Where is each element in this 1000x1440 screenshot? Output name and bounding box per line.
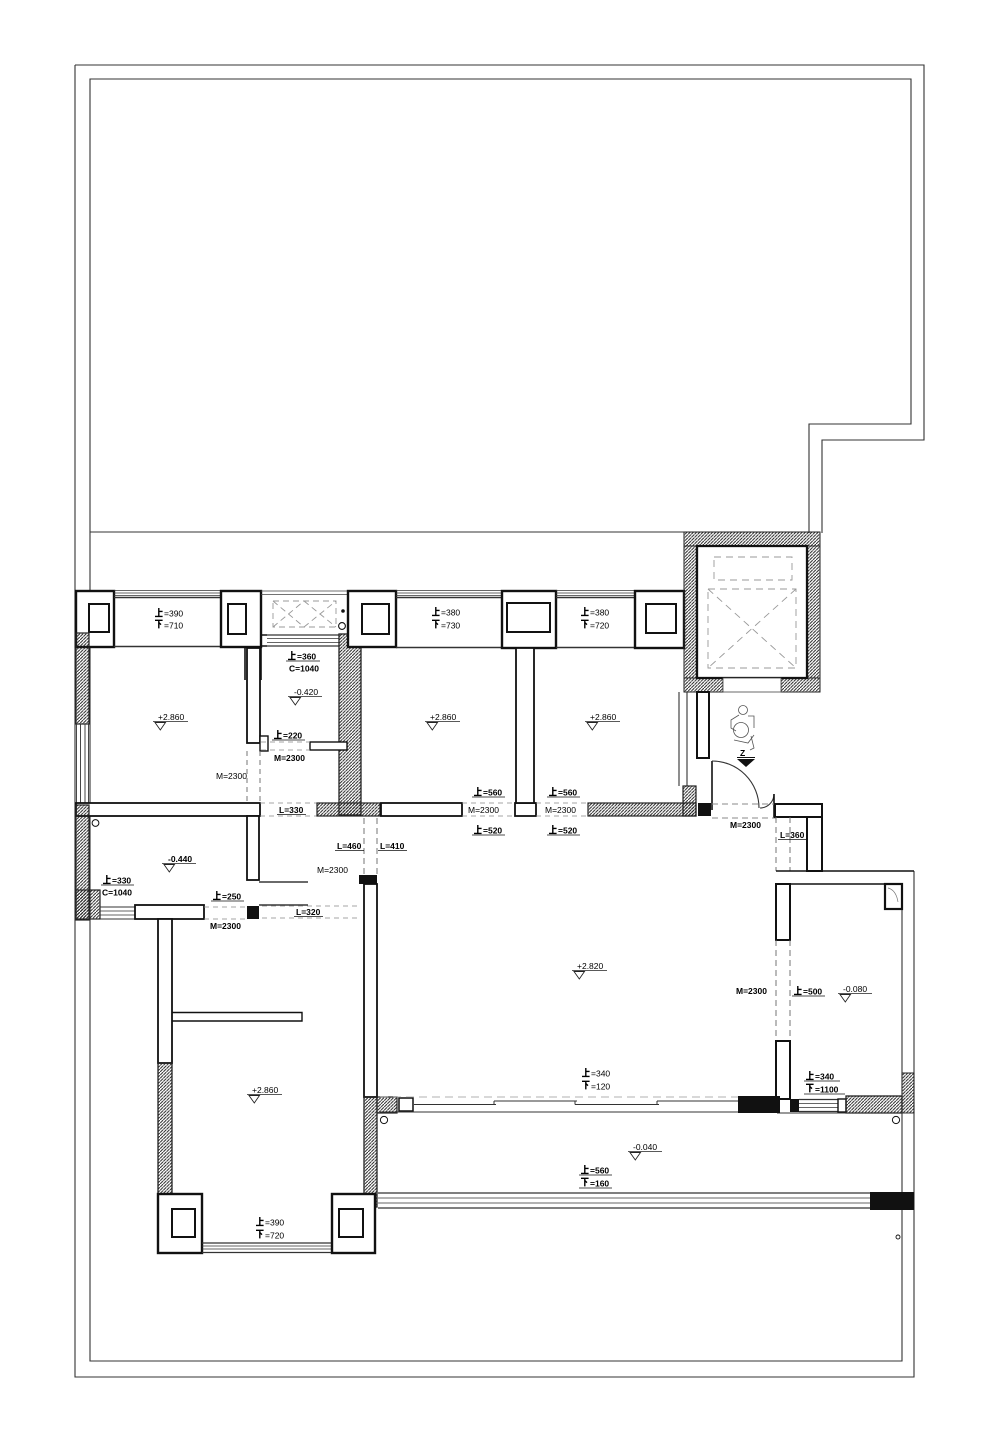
- svg-text:=360: =360: [297, 652, 316, 662]
- svg-text:=720: =720: [590, 621, 609, 631]
- svg-text:=220: =220: [283, 731, 302, 741]
- svg-text:=160: =160: [590, 1179, 609, 1189]
- svg-text:M=2300: M=2300: [210, 921, 241, 931]
- svg-text:+2.860: +2.860: [590, 712, 617, 722]
- svg-text:=250: =250: [222, 892, 241, 902]
- svg-text:=330: =330: [112, 876, 131, 886]
- svg-text:M=2300: M=2300: [274, 753, 305, 763]
- svg-text:M=2300: M=2300: [545, 805, 576, 815]
- svg-text:L=410: L=410: [380, 841, 405, 851]
- svg-text:=340: =340: [815, 1072, 834, 1082]
- svg-text:M=2300: M=2300: [736, 986, 767, 996]
- svg-text:=380: =380: [441, 608, 460, 618]
- svg-text:=500: =500: [803, 987, 822, 997]
- svg-text:L=330: L=330: [279, 805, 304, 815]
- svg-text:Z: Z: [740, 748, 745, 758]
- svg-text:=560: =560: [483, 788, 502, 798]
- svg-text:M=2300: M=2300: [468, 805, 499, 815]
- svg-text:=390: =390: [265, 1218, 284, 1228]
- svg-text:+2.820: +2.820: [577, 961, 604, 971]
- svg-text:=710: =710: [164, 621, 183, 631]
- svg-text:=120: =120: [591, 1082, 610, 1092]
- svg-text:=560: =560: [558, 788, 577, 798]
- svg-text:=340: =340: [591, 1069, 610, 1079]
- svg-text:-0.080: -0.080: [843, 984, 867, 994]
- svg-text:M=2300: M=2300: [216, 771, 247, 781]
- svg-text:+2.860: +2.860: [158, 712, 185, 722]
- svg-text:L=320: L=320: [296, 907, 321, 917]
- svg-text:C=1040: C=1040: [289, 664, 319, 674]
- svg-text:-0.440: -0.440: [168, 854, 192, 864]
- svg-text:+2.860: +2.860: [252, 1085, 279, 1095]
- svg-text:=520: =520: [483, 826, 502, 836]
- svg-text:=1100: =1100: [815, 1085, 839, 1095]
- svg-text:-0.040: -0.040: [633, 1142, 657, 1152]
- svg-text:=730: =730: [441, 621, 460, 631]
- svg-text:+2.860: +2.860: [430, 712, 457, 722]
- svg-text:L=360: L=360: [780, 830, 805, 840]
- svg-text:C=1040: C=1040: [102, 888, 132, 898]
- svg-text:=380: =380: [590, 608, 609, 618]
- svg-text:L=460: L=460: [337, 841, 362, 851]
- svg-text:=560: =560: [590, 1166, 609, 1176]
- svg-text:=520: =520: [558, 826, 577, 836]
- svg-text:=390: =390: [164, 609, 183, 619]
- svg-text:M=2300: M=2300: [317, 865, 348, 875]
- svg-text:-0.420: -0.420: [294, 687, 318, 697]
- svg-text:=720: =720: [265, 1231, 284, 1241]
- svg-text:M=2300: M=2300: [730, 820, 761, 830]
